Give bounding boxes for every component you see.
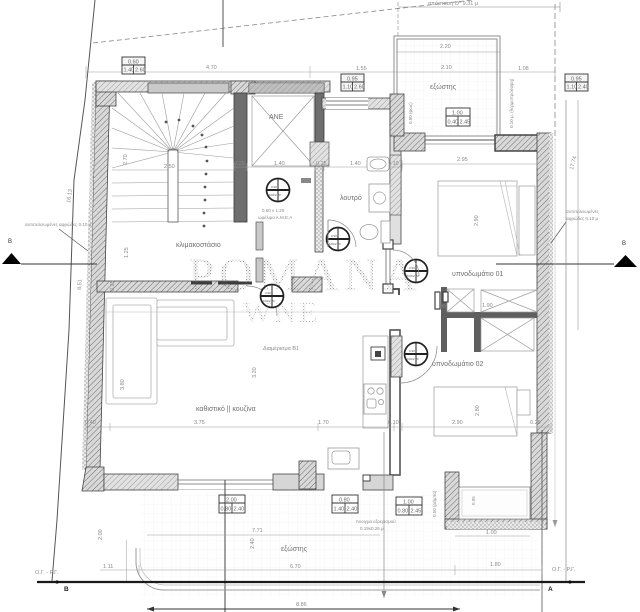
svg-text:υπνοδωμάτιο 02: υπνοδωμάτιο 02: [432, 360, 484, 368]
svg-text:3.75: 3.75: [194, 420, 205, 426]
svg-text:B: B: [622, 241, 626, 247]
svg-text:2.00: 2.00: [98, 529, 104, 540]
svg-text:1.40: 1.40: [334, 507, 345, 513]
svg-text:8.86: 8.86: [296, 602, 307, 608]
svg-text:0.90: 0.90: [409, 349, 415, 353]
svg-text:100/2.20: 100/2.20: [329, 242, 341, 246]
svg-text:Ο.Γ. - Ρ.Γ.: Ο.Γ. - Ρ.Γ.: [35, 570, 59, 576]
svg-text:1.08: 1.08: [518, 66, 529, 72]
svg-text:2.40: 2.40: [347, 507, 358, 513]
svg-text:απόσταση Θ* 9.31 μ: απόσταση Θ* 9.31 μ: [428, 0, 478, 7]
svg-text:0.80: 0.80: [339, 498, 350, 504]
svg-text:4.70: 4.70: [206, 65, 217, 71]
svg-text:0.90: 0.90: [271, 185, 277, 189]
svg-text:2.20: 2.20: [440, 44, 451, 50]
svg-text:0.25: 0.25: [110, 280, 116, 291]
svg-text:2.00: 2.00: [226, 498, 237, 504]
svg-text:εξώστης: εξώστης: [281, 545, 308, 553]
svg-text:αφρώδες 0.10 μ: αφρώδες 0.10 μ: [566, 215, 599, 221]
svg-text:1.00: 1.00: [403, 500, 414, 506]
svg-text:1.10: 1.10: [343, 85, 354, 91]
svg-text:0.25: 0.25: [316, 161, 327, 167]
svg-text:υπνοδωμάτιο 01: υπνοδωμάτιο 01: [452, 270, 504, 278]
svg-text:2.10: 2.10: [441, 65, 452, 71]
svg-text:Ο.Γ. - Ρ.Γ.: Ο.Γ. - Ρ.Γ.: [552, 567, 576, 573]
svg-text:0.10: 0.10: [388, 420, 399, 426]
svg-text:6.70: 6.70: [290, 564, 301, 570]
svg-text:2.80: 2.80: [475, 405, 481, 416]
svg-text:1.11: 1.11: [103, 564, 113, 570]
svg-text:ΡΟΜΑΝΑ: ΡΟΜΑΝΑ: [188, 249, 422, 301]
svg-text:7.71: 7.71: [252, 528, 263, 534]
svg-text:2.45: 2.45: [460, 120, 471, 126]
svg-text:2.90: 2.90: [474, 215, 480, 226]
svg-text:0.60: 0.60: [128, 60, 139, 66]
svg-text:3.80: 3.80: [120, 379, 126, 390]
svg-text:Άνοιγμα εξαερισμού: Άνοιγμα εξαερισμού: [356, 518, 396, 524]
svg-text:100/2.20: 100/2.20: [269, 193, 281, 197]
svg-text:εξώστης: εξώστης: [430, 83, 457, 91]
svg-text:0.10 μ. (θερμοπρόσοψη): 0.10 μ. (θερμοπρόσοψη): [508, 78, 514, 128]
svg-text:0.60 x 1.20: 0.60 x 1.20: [262, 208, 285, 213]
svg-text:0.10: 0.10: [388, 161, 399, 167]
svg-text:2.45: 2.45: [411, 509, 422, 515]
svg-text:1.55: 1.55: [356, 66, 367, 72]
svg-text:0.25: 0.25: [530, 420, 541, 426]
svg-text:1.70: 1.70: [318, 420, 329, 426]
svg-text:0.80: 0.80: [221, 507, 232, 513]
svg-text:0.50 (ράμπα): 0.50 (ράμπα): [431, 490, 437, 517]
svg-text:λουτρό: λουτρό: [340, 194, 362, 202]
svg-text:2.95: 2.95: [457, 157, 468, 163]
svg-text:0.95: 0.95: [471, 496, 476, 505]
svg-text:0.95: 0.95: [347, 77, 358, 83]
svg-text:2.60: 2.60: [354, 85, 365, 91]
svg-text:1.10: 1.10: [567, 85, 578, 91]
svg-text:καθιστικό || κουζίνα: καθιστικό || κουζίνα: [196, 405, 256, 413]
svg-text:16.13: 16.13: [66, 189, 74, 203]
svg-text:2.40: 2.40: [250, 538, 256, 549]
svg-text:1.80: 1.80: [490, 562, 501, 568]
svg-text:2.60: 2.60: [135, 68, 146, 74]
svg-text:1.40: 1.40: [350, 161, 361, 167]
svg-text:WNE: WNE: [243, 296, 320, 329]
svg-text:100/2.20: 100/2.20: [407, 357, 419, 361]
svg-text:B: B: [64, 586, 69, 593]
svg-text:2.40: 2.40: [578, 85, 589, 91]
svg-text:0.19x0.26 μ.: 0.19x0.26 μ.: [360, 526, 385, 531]
svg-text:2.50: 2.50: [164, 164, 175, 170]
svg-text:0.40: 0.40: [448, 120, 459, 126]
svg-text:0.25: 0.25: [234, 161, 245, 167]
svg-text:A: A: [548, 586, 553, 593]
svg-text:ΑΝΕ: ΑΝΕ: [269, 114, 284, 121]
svg-text:0.80: 0.80: [398, 509, 409, 515]
svg-text:2.40: 2.40: [234, 507, 245, 513]
svg-text:1.00: 1.00: [486, 530, 497, 536]
svg-text:ωφέλιμο Α.Μ.Ε.Α: ωφέλιμο Α.Μ.Ε.Α: [258, 214, 292, 220]
svg-text:0.40: 0.40: [85, 420, 96, 426]
svg-text:1.40: 1.40: [274, 161, 285, 167]
svg-text:1.25: 1.25: [124, 247, 130, 258]
svg-text:αυτοτελειωμένες: αυτοτελειωμένες: [566, 208, 600, 214]
svg-text:1.40: 1.40: [124, 68, 135, 74]
svg-text:Διαμέρισμα Β1: Διαμέρισμα Β1: [263, 345, 299, 352]
svg-text:2.70: 2.70: [123, 154, 129, 165]
svg-text:1.90: 1.90: [482, 303, 493, 309]
svg-text:8.51: 8.51: [77, 279, 84, 290]
svg-text:0.95: 0.95: [571, 77, 582, 83]
svg-text:κλιμακοστάσιο: κλιμακοστάσιο: [176, 241, 221, 249]
svg-text:2.90: 2.90: [452, 420, 463, 426]
svg-text:1.00: 1.00: [452, 111, 463, 117]
svg-text:17.74: 17.74: [569, 156, 578, 171]
svg-text:αυτοτελειωμένες αφρώδες 0.10 μ: αυτοτελειωμένες αφρώδες 0.10 μ.: [25, 221, 92, 227]
svg-text:3.20: 3.20: [252, 367, 258, 378]
svg-text:0.90: 0.90: [331, 234, 337, 238]
svg-text:B: B: [8, 239, 12, 245]
svg-text:0.80 (φως): 0.80 (φως): [408, 102, 413, 124]
